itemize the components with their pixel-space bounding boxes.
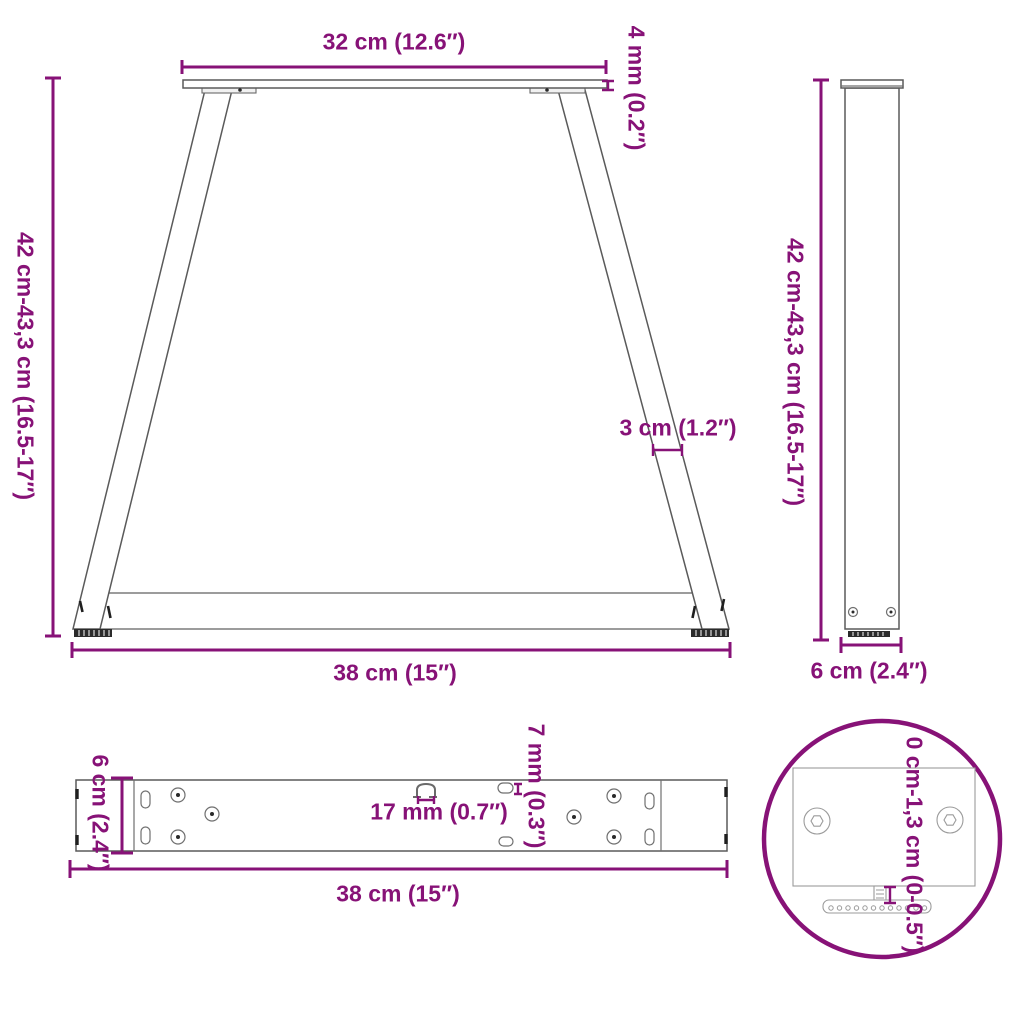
dim-label-front-bottom-width: 38 cm (15″) <box>333 662 457 685</box>
dim-label-top-hole-height: 7 mm (0.3″) <box>525 724 548 849</box>
dim-label-detail-adjustment-range: 0 cm-1,3 cm (0-0.5″) <box>903 737 926 954</box>
dim-label-front-plate-thickness: 4 mm (0.2″) <box>625 26 648 151</box>
detail-view-drawing <box>764 721 1000 957</box>
dim-label-top-hole-width: 17 mm (0.7″) <box>370 801 508 824</box>
dim-label-side-depth: 6 cm (2.4″) <box>810 660 927 683</box>
dimension-diagram: 32 cm (12.6″) 4 mm (0.2″) 42 cm-43,3 cm … <box>0 0 1024 1024</box>
dim-label-front-profile-width: 3 cm (1.2″) <box>619 417 736 440</box>
dim-label-front-top-width: 32 cm (12.6″) <box>323 31 466 54</box>
dim-label-side-height-range: 42 cm-43,3 cm (16.5-17″) <box>784 238 807 506</box>
side-view-drawing <box>841 80 903 637</box>
dim-label-top-length: 38 cm (15″) <box>336 883 460 906</box>
dim-label-top-depth: 6 cm (2.4″) <box>89 754 112 871</box>
front-view-drawing <box>73 80 729 637</box>
dim-label-front-height-range: 42 cm-43,3 cm (16.5-17″) <box>14 232 37 500</box>
line-art <box>0 0 1024 1024</box>
